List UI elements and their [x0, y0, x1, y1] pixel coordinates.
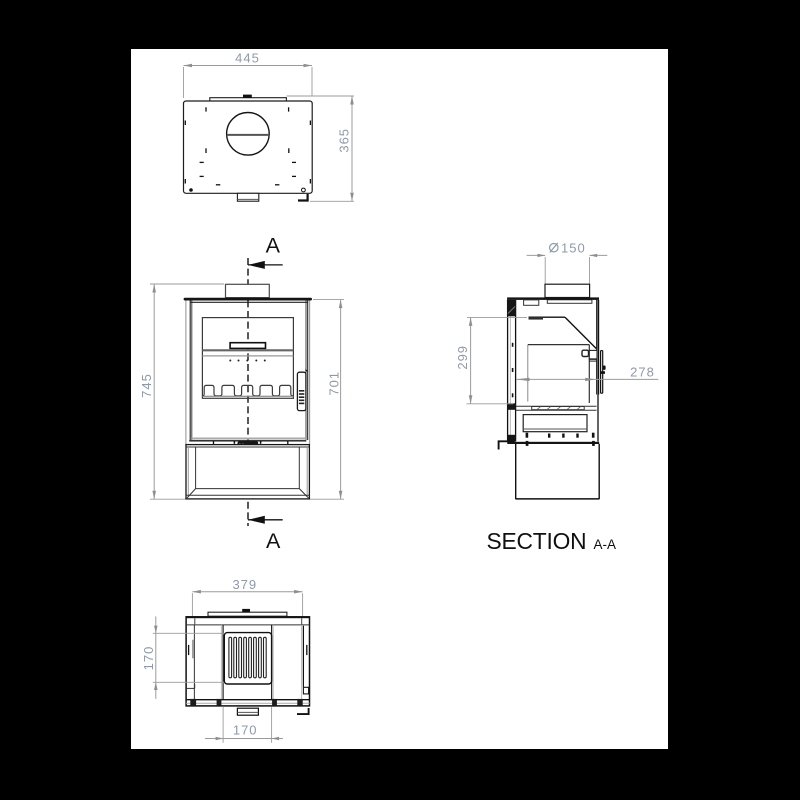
svg-text:SECTION: SECTION: [487, 528, 587, 554]
svg-text:A: A: [266, 234, 281, 258]
svg-text:170: 170: [233, 723, 258, 738]
svg-text:299: 299: [455, 345, 470, 370]
svg-text:745: 745: [139, 373, 154, 398]
svg-text:379: 379: [232, 577, 257, 592]
svg-text:150: 150: [561, 240, 586, 255]
svg-text:701: 701: [327, 371, 342, 396]
svg-text:278: 278: [630, 365, 655, 380]
svg-text:365: 365: [336, 128, 351, 153]
svg-text:A: A: [266, 529, 281, 553]
svg-text:445: 445: [235, 51, 260, 66]
svg-text:170: 170: [141, 646, 156, 671]
svg-text:A-A: A-A: [594, 537, 617, 552]
